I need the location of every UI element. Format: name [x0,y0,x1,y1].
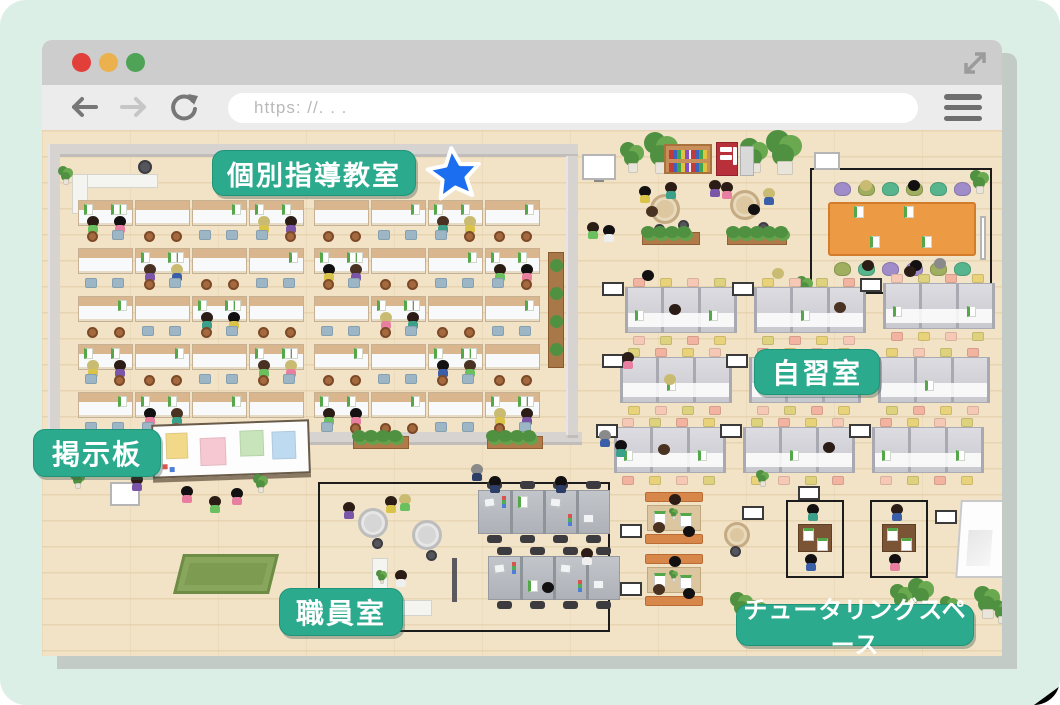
seated-person [642,270,654,281]
potted-plant-icon [376,570,388,584]
study-chair [660,278,672,287]
study-chair [918,332,930,341]
chair [462,422,474,432]
seated-person [669,494,681,505]
study-sheet [882,450,891,461]
stool [380,327,391,338]
study-cubicles [620,357,732,403]
study-chair [789,336,801,345]
chair [405,326,417,336]
office-chair [530,547,545,555]
person [130,474,144,494]
stool [372,538,383,549]
meeting-doc [870,236,880,248]
study-chair [967,406,979,415]
study-chair [709,348,721,357]
worksheet [111,204,120,215]
potted-plant-icon [58,166,74,185]
stool [521,231,532,242]
planter-box [353,436,409,449]
seated-person [904,266,916,277]
seated-person [772,268,784,279]
study-chair [907,418,919,427]
stool [285,327,296,338]
study-cubicles [743,427,855,473]
worksheet [168,396,177,407]
person [602,225,616,245]
seated-person [862,260,874,271]
seated-person [653,522,665,533]
study-chair [676,476,688,485]
study-chair [972,274,984,283]
study-chair [913,348,925,357]
seated-person [683,588,695,599]
worksheet [347,396,356,407]
stool [114,375,125,386]
worksheet [118,396,127,407]
chair [226,326,238,336]
potted-plant-icon [620,142,646,173]
seated-person [683,526,695,537]
potted-plant-icon [669,570,679,582]
person [720,182,734,202]
study-chair [934,418,946,427]
label-staff-room: 職員室 [279,588,403,636]
worksheet [347,252,356,263]
worksheet [282,348,291,359]
meeting-doc [922,236,932,248]
chair [85,374,97,384]
cursor-icon [1034,686,1060,705]
meeting-table [828,202,976,256]
chair [492,278,504,288]
stool [114,327,125,338]
stool [228,279,239,290]
office-chair [586,481,601,489]
chair [142,326,154,336]
forward-button[interactable] [118,92,150,122]
study-chair [622,418,634,427]
chair [199,230,211,240]
tutoring-desk [882,524,916,552]
meeting-chair [834,262,851,276]
study-chair [687,278,699,287]
stool [521,375,532,386]
study-cubicles [878,357,990,403]
study-chair [972,332,984,341]
study-chair [649,476,661,485]
classroom-desk [371,344,426,370]
minimize-button[interactable] [99,53,118,72]
chair [256,230,268,240]
study-chair [682,348,694,357]
stool [87,231,98,242]
planter-box [727,232,787,245]
study-chair [778,476,790,485]
worksheet [111,348,120,359]
study-chair [751,418,763,427]
study-sheet [635,310,644,321]
office-desk-cluster [488,556,620,600]
person [180,486,194,506]
label-bulletin-board: 掲示板 [33,429,161,477]
divider-wall [566,156,578,438]
page-background: https: //. . . 個別指導教室 自習室 掲示板 職員室 チュータリン… [0,0,1060,705]
classroom-desk [192,248,247,274]
chair [169,278,181,288]
study-chair [789,278,801,287]
classroom-desk [428,392,483,418]
sign-board [620,582,642,596]
stool [521,279,532,290]
worksheet [175,348,184,359]
person [708,180,722,200]
study-chair [628,406,640,415]
study-sheet [956,450,965,461]
study-chair [714,278,726,287]
worksheet [491,396,500,407]
worksheet [168,252,177,263]
sign-board [602,282,624,296]
person [598,430,612,450]
sign-board [742,506,764,520]
stool [258,375,269,386]
chair [85,278,97,288]
seated-person [669,556,681,567]
booth-bench [645,534,703,544]
partition-screen [452,558,457,602]
study-chair [762,278,774,287]
url-input[interactable]: https: //. . . [228,93,918,123]
study-chair [832,476,844,485]
study-chair [886,348,898,357]
stool [350,375,361,386]
seated-person [658,444,670,455]
worksheet [377,300,386,311]
resize-icon[interactable] [960,48,990,78]
study-chair [805,418,817,427]
close-button[interactable] [72,53,91,72]
study-chair [660,336,672,345]
staff [394,570,408,590]
worksheet [468,252,477,263]
worksheet [525,300,534,311]
study-cubicles [754,287,866,333]
classroom-left-wall [48,144,60,454]
stool [494,375,505,386]
office-chair [596,601,611,609]
study-chair [843,278,855,287]
planter-box [642,232,700,245]
chair [348,278,360,288]
chair [519,326,531,336]
browser-toolbar: https: //. . . [42,85,1002,130]
potted-plant-icon [970,170,990,194]
staff [488,476,502,496]
person [230,488,244,508]
classroom-desk [485,344,540,370]
chair [226,374,238,384]
worksheet [232,204,241,215]
chair [378,230,390,240]
study-chair [655,348,667,357]
seated-person [908,180,920,191]
chair [112,230,124,240]
staff [398,494,412,514]
worksheet [354,348,363,359]
person [638,186,652,206]
meeting-chair [954,182,971,196]
study-chair [633,336,645,345]
sign-board [720,424,742,438]
stool [201,279,212,290]
study-chair [816,278,828,287]
stool [144,279,155,290]
classroom-desk [314,296,369,322]
sign-board [732,282,754,296]
cooler [740,146,754,176]
classroom-desk [371,248,426,274]
chair [348,326,360,336]
worksheet [141,252,150,263]
study-sheet [801,310,810,321]
worksheet [198,300,207,311]
study-chair [811,406,823,415]
study-chair [880,476,892,485]
worksheet [84,204,93,215]
study-chair [709,406,721,415]
study-chair [832,418,844,427]
staff [580,548,594,568]
worksheet [255,204,264,215]
classroom-desk [249,392,304,418]
office-chair [497,601,512,609]
office-chair [563,601,578,609]
chair [283,374,295,384]
study-sheet [925,380,934,391]
classroom-desk [135,200,190,226]
study-chair [622,476,634,485]
office-chair [520,481,535,489]
person [586,222,600,242]
sign-board [935,510,957,524]
classroom-desk [192,344,247,370]
office-chair [487,535,502,543]
planter-box [487,436,543,449]
stool [323,279,334,290]
worksheet [518,252,527,263]
study-chair [682,406,694,415]
chair [226,230,238,240]
worksheet [461,348,470,359]
office-desk-cluster [478,490,610,534]
office-chair [586,535,601,543]
study-chair [805,476,817,485]
whiteboard [814,152,840,170]
stool [201,327,212,338]
label-tutoring-space: チュータリングスペース [736,604,974,646]
chair [199,374,211,384]
office-chair [497,547,512,555]
refresh-button[interactable] [168,92,200,122]
bulletin-board [151,419,311,478]
study-chair [687,336,699,345]
worksheet [434,348,443,359]
stool [171,231,182,242]
meeting-doc [904,206,914,218]
chair [462,374,474,384]
worksheet [141,396,150,407]
sign-board [849,424,871,438]
study-chair [918,274,930,283]
back-button[interactable] [68,92,100,122]
worksheet [118,300,127,311]
study-chair [891,332,903,341]
staff [342,502,356,522]
office-chair [563,547,578,555]
chair [492,326,504,336]
worksheet [232,396,241,407]
worksheet [411,204,420,215]
study-chair [778,418,790,427]
sign-board [798,486,820,500]
office-chair [553,535,568,543]
seated-person [653,584,665,595]
meeting-doc [854,206,864,218]
chair [321,422,333,432]
tutor [806,504,820,524]
chair [435,230,447,240]
plant-shelf [548,252,564,368]
stool [350,231,361,242]
stool [285,231,296,242]
classroom-desk [249,296,304,322]
study-chair [714,336,726,345]
study-chair [703,418,715,427]
label-classroom: 個別指導教室 [212,150,416,196]
seated-person [664,374,676,385]
study-chair [967,348,979,357]
classroom-desk [314,200,369,226]
study-chair [940,348,952,357]
study-chair [843,336,855,345]
stool [464,327,475,338]
study-sheet [893,306,902,317]
projector-screen [980,216,986,260]
chair [256,278,268,288]
worksheet [320,252,329,263]
study-chair [945,332,957,341]
worksheet [404,300,413,311]
study-chair [655,406,667,415]
study-chair [907,476,919,485]
sign-board [620,524,642,538]
label-study-room: 自習室 [754,349,880,395]
bookshelf [664,144,712,174]
seated-person [934,258,946,269]
study-chair [880,418,892,427]
person [208,496,222,516]
staff [384,496,398,516]
tutor [890,504,904,524]
chair [378,374,390,384]
green-rug [173,554,279,594]
classroom-desk [78,248,133,274]
stool [437,327,448,338]
seated-person [860,180,872,191]
chair [321,326,333,336]
staff-round-table [412,520,442,550]
stool [323,375,334,386]
sign-board [860,278,882,292]
classroom-desk [135,296,190,322]
study-chair [961,418,973,427]
chair [169,326,181,336]
menu-button[interactable] [944,94,982,121]
study-chair [913,406,925,415]
chair [405,374,417,384]
stool [144,231,155,242]
worksheet [411,396,420,407]
study-chair [945,274,957,283]
stool [380,279,391,290]
stool [426,550,437,561]
seated-person [542,582,554,593]
browser-window: https: //. . . [42,40,1002,656]
stool [730,546,741,557]
worksheet [525,204,534,215]
potted-plant-icon [253,474,269,493]
browser-titlebar [42,40,1002,85]
sign-board [726,354,748,368]
vending-machine [716,142,738,176]
seated-person [823,442,835,453]
worksheet [320,396,329,407]
stool [407,279,418,290]
potted-plant-icon [756,470,770,487]
study-sheet [790,450,799,461]
person [664,182,678,202]
student [888,554,902,574]
study-chair [886,406,898,415]
study-sheet [967,306,976,317]
office-chair [138,160,152,174]
tutoring-desk [798,524,832,552]
office-chair [596,547,611,555]
seated-person [646,206,658,217]
student [804,554,818,574]
stool [407,423,418,434]
staff [470,464,484,484]
study-chair [934,476,946,485]
chair [405,230,417,240]
study-chair [676,418,688,427]
study-chair [891,274,903,283]
maximize-button[interactable] [126,53,145,72]
person [614,440,628,460]
chair [283,278,295,288]
worksheet [289,252,298,263]
study-sheet [698,450,707,461]
whiteboard [582,154,616,180]
potted-plant-icon [766,130,804,176]
meeting-chair [930,182,947,196]
office-chair [530,601,545,609]
worksheet [282,204,291,215]
worksheet [518,396,527,407]
stool [323,231,334,242]
meeting-chair [834,182,851,196]
